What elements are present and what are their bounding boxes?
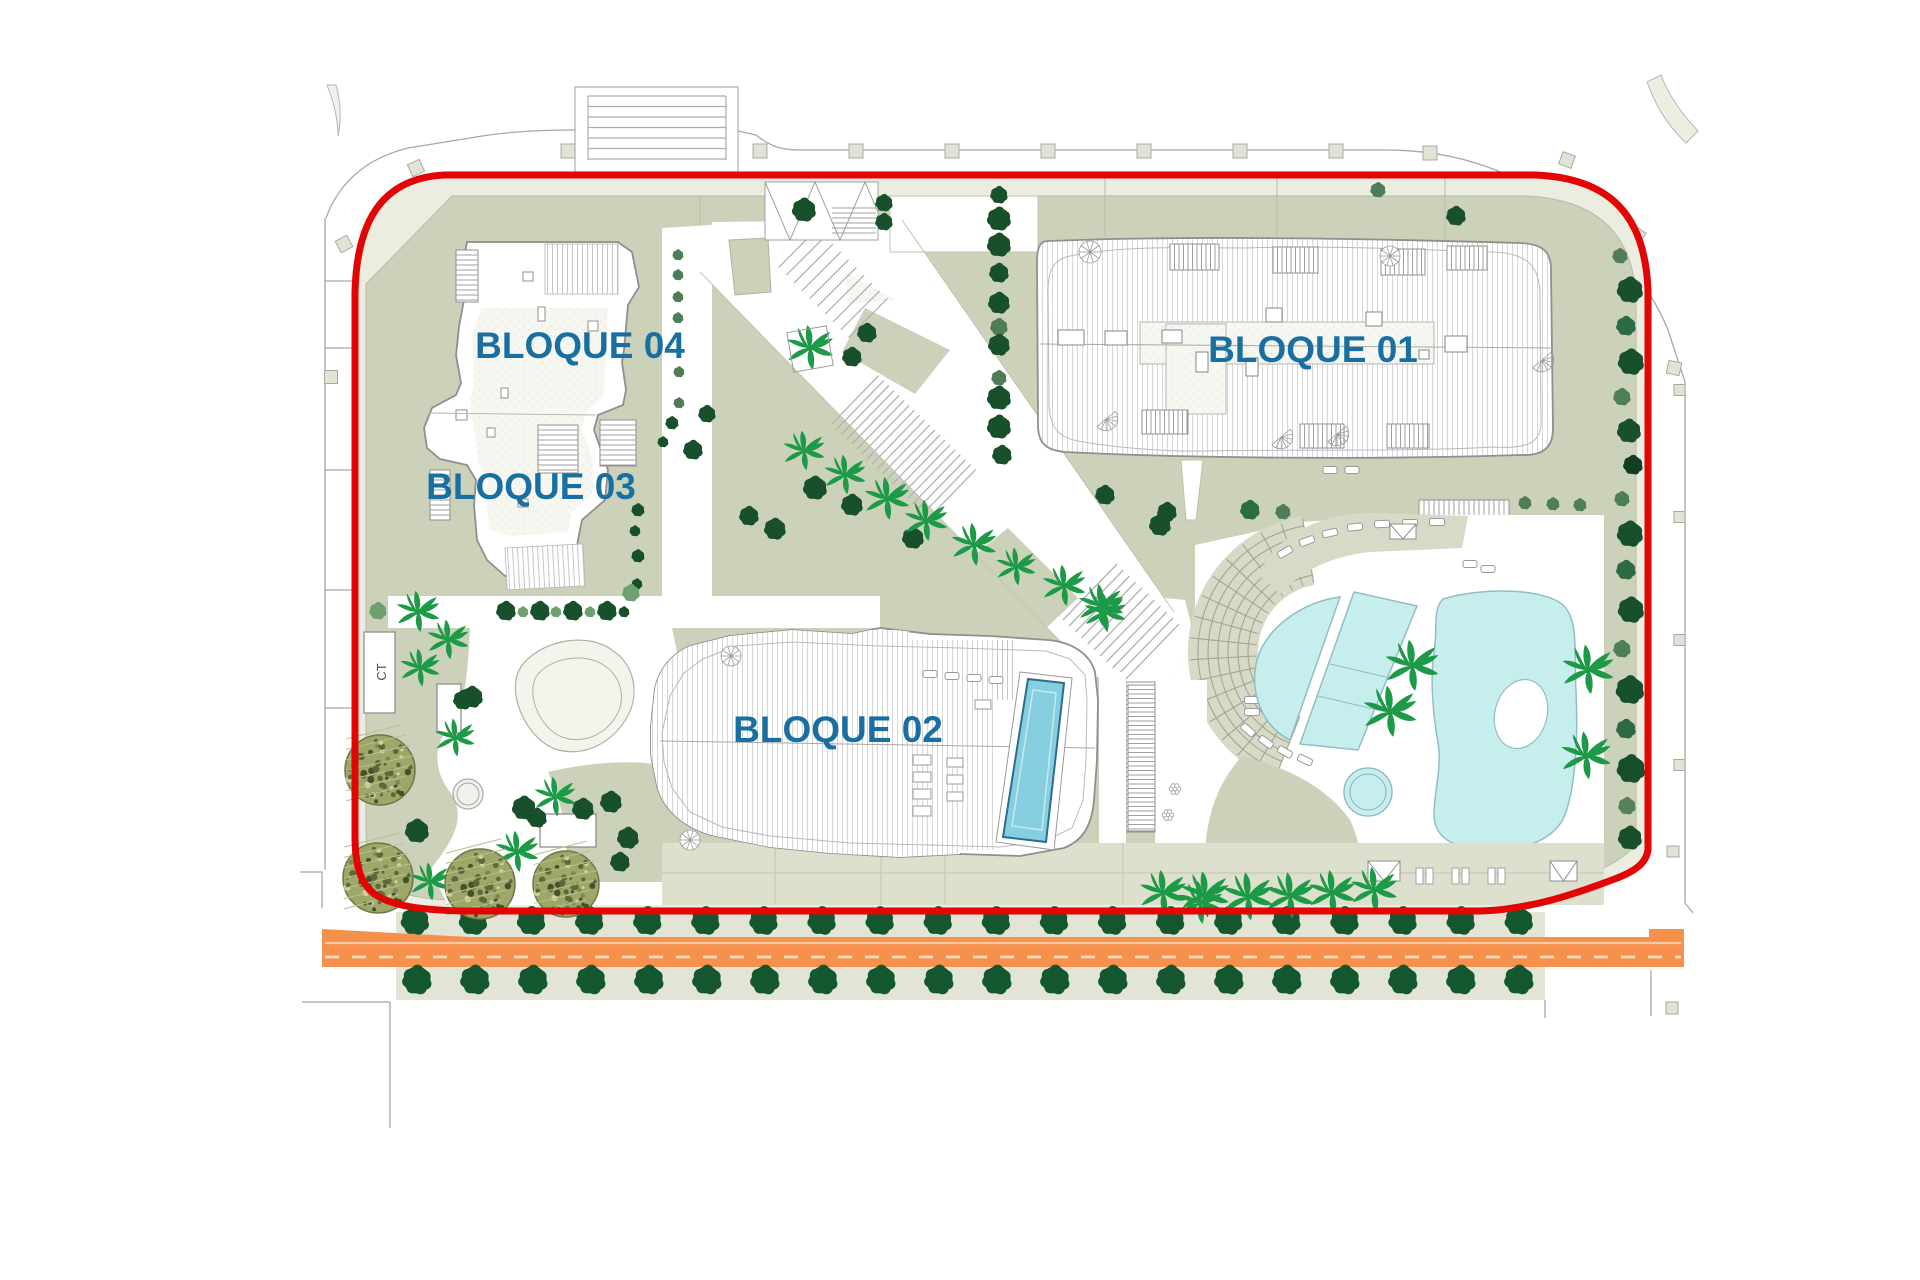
svg-text:BLOQUE 03: BLOQUE 03 (426, 466, 636, 507)
svg-text:BLOQUE 01: BLOQUE 01 (1208, 329, 1418, 370)
svg-text:BLOQUE 04: BLOQUE 04 (475, 325, 685, 366)
svg-text:BLOQUE 02: BLOQUE 02 (733, 709, 943, 750)
svg-text:CT: CT (374, 663, 389, 680)
